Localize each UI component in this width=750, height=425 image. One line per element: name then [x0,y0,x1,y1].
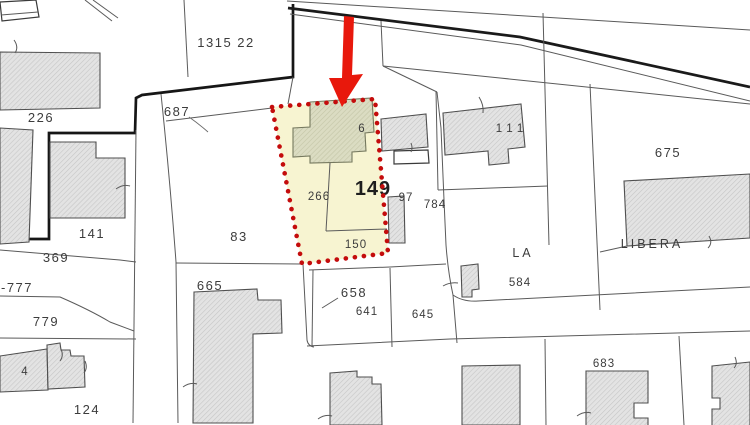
building-584 [461,264,479,297]
parcel-label-675: 675 [655,145,681,160]
parcel-label-641: 641 [356,306,378,318]
building-label-6: 6 [358,123,365,135]
building-141 [50,142,125,218]
red-arrow-marker [329,16,363,107]
parcel-label-779: 779 [33,314,59,329]
parcel-label-4: 4 [21,366,28,378]
parcel-label-584: 584 [509,277,531,289]
parcel-label-149: 149 [355,178,391,200]
building-226 [0,52,100,110]
building-683 [586,371,648,425]
building-near-arrow [381,114,428,151]
parcel-label-124: 124 [74,402,100,417]
map-canvas: 226 1315 22 687 141 369 -777 779 4 124 8… [0,0,750,425]
road-lines [287,1,750,104]
parcel-label-784: 784 [424,199,446,211]
building-665 [193,289,282,423]
parcel-label-658: 658 [341,285,367,300]
parcel-label-665: 665 [197,278,223,293]
parcel-label-83: 83 [230,229,247,244]
parcel-label-1315-22: 1315 22 [197,35,255,50]
street-label-libera: LIBERA [621,237,683,251]
building-bottom-right-a [462,365,520,425]
parcel-label-97: 97 [399,192,414,204]
building-corner [0,0,39,21]
parcel-label-141: 141 [79,226,105,241]
cadastral-map: 226 1315 22 687 141 369 -777 779 4 124 8… [0,0,750,425]
parcel-label-150: 150 [345,239,367,251]
parcel-label-369: 369 [43,250,69,265]
parcel-label-266: 266 [308,191,330,203]
parcel-label-683: 683 [593,358,615,370]
parcel-label-645: 645 [412,309,434,321]
parcel-label-226: 226 [28,110,54,125]
parcel-label-777: -777 [1,280,33,295]
building-bottom-right-edge [712,362,750,425]
building-675 [624,174,750,246]
street-label-la: LA [512,246,533,260]
parcel-label-687: 687 [164,104,190,119]
building-label-111: 111 [496,123,528,135]
building-bottom-left-b [47,343,85,389]
building-bottom-center [330,371,382,425]
building-left-strip [0,128,33,244]
